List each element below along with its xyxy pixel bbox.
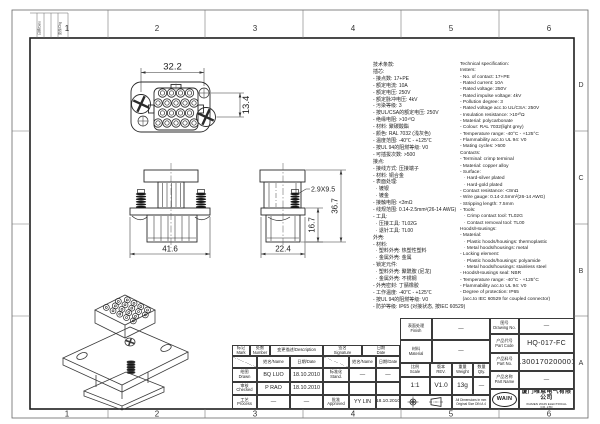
dimensions-note: All Dimensions in mm Original Size DIN A… (452, 395, 490, 409)
rev-value: V1.0 (430, 377, 452, 395)
spring-callout: 2.9X9.5 (311, 187, 335, 194)
spec-line: - 按UL 94的阻燃等级: V0 (373, 145, 465, 152)
dim-side-lower: 16.7 (308, 217, 317, 233)
spec-line: - 外壳密封: 丁腈橡胶 (373, 283, 465, 290)
drawn-date: 18.10.2010 (290, 368, 323, 382)
spec-line: · 退针工具: TL00 (373, 228, 465, 235)
iso-contact-pins (103, 297, 150, 324)
zone-col-label: 1 (65, 410, 70, 419)
spec-line: - 防护等级: IP65 (对接状态, 按IEC 60529) (373, 304, 465, 311)
engineering-drawing-sheet: 1 2 3 4 5 6 1 2 3 4 5 6 D C B A 日期/Date … (0, 0, 600, 424)
name-header: 姓名/Name (257, 356, 290, 368)
weight-label: 重量Weight (452, 363, 473, 377)
zone-col-label: 3 (253, 24, 258, 33)
title-block: 标记Mark 处数Number 变更描述/Description 签名Signa… (232, 318, 574, 409)
part-code-label: 产品代号Part Code (490, 334, 519, 353)
spec-line: - 温度范围: -40℃ - +125℃ (373, 138, 465, 145)
technical-spec-chinese: 技术条款:插芯:- 接点数: 17+PE- 额定电流: 10A- 额定电压: 2… (373, 62, 465, 311)
date-header: 日期/Date (376, 356, 400, 368)
company-logo-cell: WAIN (490, 389, 519, 409)
process-label: 工艺Process (232, 395, 257, 409)
part-no-label: 产品料号Part No. (490, 353, 519, 371)
spec-line: - 线规范围: 0.14-2.5mm²(26-14 AWG) (373, 207, 465, 214)
empty-cell (376, 382, 400, 396)
zone-col-label: 6 (547, 410, 552, 419)
zone-col-label: 4 (351, 410, 356, 419)
company-name-en: XIAMEN WAIN ELECTRICAL CO.,LTD (520, 403, 573, 409)
zone-col-label: 6 (547, 24, 552, 33)
material-label: 材料Material (400, 340, 432, 363)
scale-value: 1:1 (400, 377, 430, 395)
approved-label: 批准Approved (323, 395, 349, 409)
zone-col-label: 5 (449, 410, 454, 419)
approved-date: 18.10.2010 (376, 395, 400, 409)
checked-label: 审核Checked (232, 382, 257, 396)
corner-strip-label: 日期/Date (37, 21, 42, 35)
spec-line: - 接点数: 17+PE (373, 76, 465, 83)
weight-value: 13g (452, 377, 473, 395)
spec-line: · 压接工具: TL02G (373, 221, 465, 228)
wain-logo: WAIN (492, 392, 517, 407)
name-header: 姓名/Name (349, 356, 376, 368)
face-view (130, 82, 218, 132)
standardized-signature: — (349, 368, 376, 382)
rev-label: 版本REV. (430, 363, 452, 377)
spring-side (290, 193, 299, 208)
zone-col-label: 2 (155, 24, 160, 33)
isometric-view (63, 295, 188, 410)
zone-row-label: D (578, 82, 583, 89)
number-header: 处数Number (250, 345, 270, 356)
zone-row-label: B (579, 268, 584, 275)
part-no-value: 1300170200001 (519, 353, 574, 371)
spec-line: - 接线方式: 压接端子 (373, 166, 465, 173)
material-value: — (432, 340, 490, 363)
iso-screw (125, 337, 136, 347)
company-name-cn: 厦门唯恩电气有限公司 (520, 389, 573, 402)
spec-line: - 颜色: RAL 7032 (浅灰色) (373, 131, 465, 138)
spec-line: - 接触电阻: <3mΩ (373, 200, 465, 207)
company-name-cell: 厦门唯恩电气有限公司 XIAMEN WAIN ELECTRICAL CO.,LT… (519, 389, 574, 409)
signature-header: 签名Signature (323, 345, 362, 356)
first-angle-projection-icon (401, 396, 451, 408)
checked-name: P RAO (257, 382, 290, 396)
zone-col-label: 2 (155, 410, 160, 419)
dim-side-width: 22.4 (275, 245, 291, 254)
spec-line: - Rated voltage acc.to UL/CSA: 250V (460, 106, 550, 112)
drawn-label: 绘图Drawn (232, 368, 257, 382)
standardized-date: — (376, 368, 400, 382)
spec-line: · 金属外壳: 不锈钢 (373, 276, 465, 283)
part-name-label: 产品名称Part Name (490, 371, 519, 389)
scale-label: 比例Scale (400, 363, 430, 377)
zone-row-label: A (579, 360, 584, 367)
description-header: 变更描述/Description (270, 345, 323, 356)
mark-header: 标记Mark (232, 345, 250, 356)
spec-line: 外壳: (373, 235, 465, 242)
spring-left (136, 193, 146, 208)
date-header: 日期/Date (290, 356, 323, 368)
drawn-name: BQ LUO (257, 368, 290, 382)
empty-cell (349, 382, 376, 396)
drawing-no-label: 图号Drawing No. (490, 318, 519, 334)
qty-value: — (473, 377, 490, 395)
spring-right (196, 193, 206, 208)
spec-line: - 可插拔次数: >500 (373, 152, 465, 159)
corner-revision-strip (30, 13, 68, 38)
checked-date: 18.10.2010 (290, 382, 323, 396)
projection-symbols-cell (400, 395, 452, 409)
empty-cell (323, 382, 349, 396)
zone-row-label: C (578, 175, 583, 182)
dim-front-width: 41.6 (162, 245, 178, 254)
side-view (260, 163, 305, 248)
qty-label: 数量Qty. (473, 363, 490, 377)
dim-face-pitch: 13.4 (241, 96, 252, 115)
spec-line: - 额定电流: 10A (373, 83, 465, 90)
dim-face-width: 32.2 (163, 62, 182, 73)
spec-line: - Wire gauge: 0.14-2.5mm²(26-14 AWG) (460, 195, 550, 201)
spec-line: (acc.to IEC 60529 for coupled connector) (460, 297, 550, 303)
date-header: 日期Date (362, 345, 400, 356)
zone-col-label: 1 (65, 24, 70, 33)
standardized-label: 标准化Stand. (323, 368, 349, 382)
technical-spec-english: Technical specification:Insters:- No. of… (460, 62, 550, 303)
corner-strip-label: 更改/Chg (57, 22, 62, 35)
process-date: — (290, 395, 323, 409)
part-name-value: — (519, 371, 574, 389)
approved-signature: YY LIN (349, 395, 376, 409)
process-name: — (257, 395, 290, 409)
spec-line: 技术条款: (373, 62, 465, 69)
iso-spring (127, 361, 135, 374)
zone-col-label: 3 (253, 410, 258, 419)
diagonal-cell (232, 356, 257, 368)
drawing-no-value: — (519, 318, 574, 334)
finish-label: 表面处理Finish (400, 318, 432, 340)
spec-line: - 工作温度: -40℃ - +125℃ (373, 290, 465, 297)
finish-value: — (432, 318, 490, 340)
dim-side-total: 36.7 (331, 198, 340, 214)
zone-col-label: 5 (449, 24, 454, 33)
contact-holes (154, 89, 198, 127)
part-code-value: HQ-017-FC (519, 334, 574, 353)
spec-line: 插芯: (373, 69, 465, 76)
diagonal-cell (323, 356, 349, 368)
spec-line: - 按UL 94的阻燃等级: V0 (373, 297, 465, 304)
spec-line: - 工具: (373, 214, 465, 221)
spec-line: 接点: (373, 159, 465, 166)
zone-col-label: 4 (351, 24, 356, 33)
spec-line: - 额定电压: 250V (373, 90, 465, 97)
